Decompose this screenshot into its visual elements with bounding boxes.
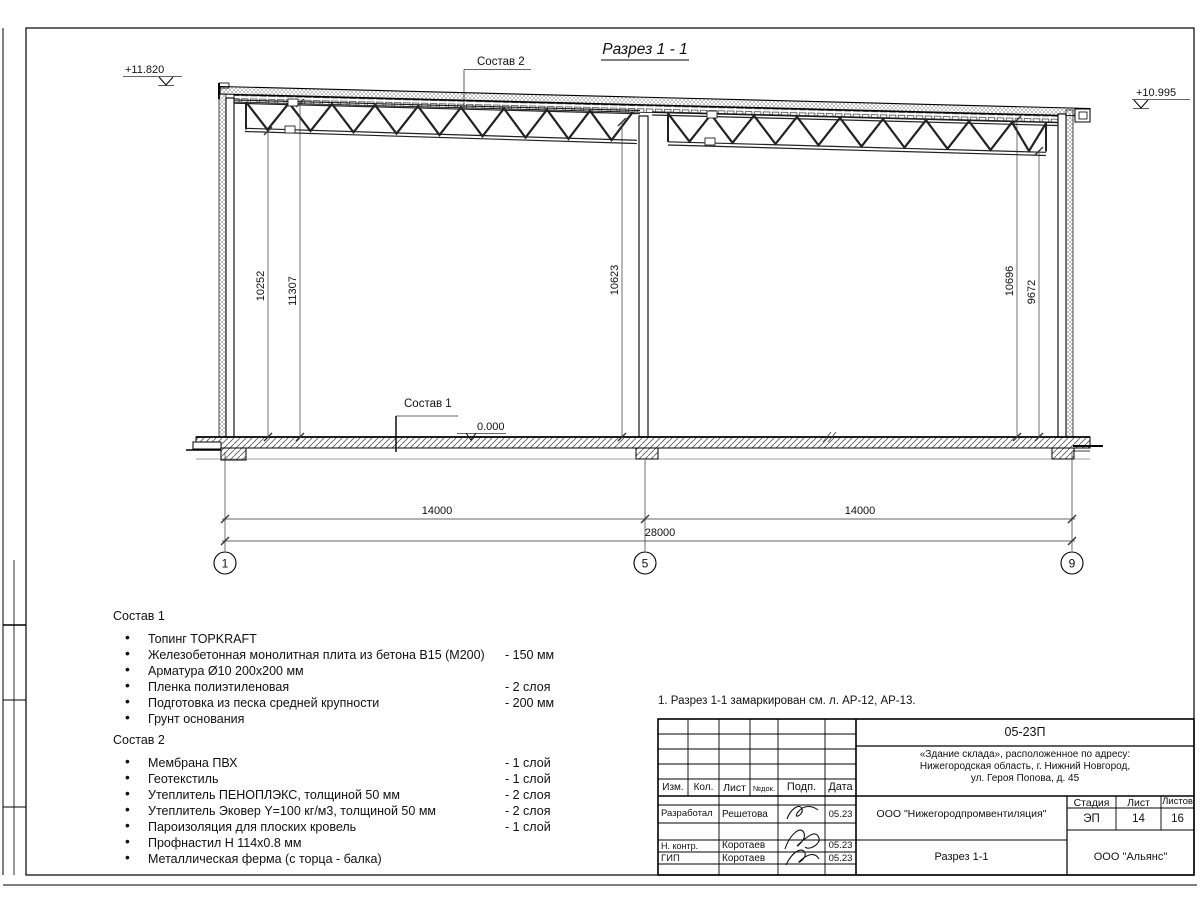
stamp-row-role: Н. контр. bbox=[661, 841, 698, 851]
stamp-col-ndok: №док. bbox=[750, 785, 778, 794]
floor-slab bbox=[186, 432, 1103, 460]
list-item: •Железобетонная монолитная плита из бето… bbox=[113, 647, 583, 663]
bullet-icon: • bbox=[125, 833, 130, 849]
list-item: •Пароизоляция для плоских кровель- 1 сло… bbox=[113, 819, 583, 835]
foundation-right bbox=[1052, 448, 1074, 459]
dim-label-total: 28000 bbox=[645, 527, 676, 539]
stamp-row-name: Коротаев bbox=[722, 840, 765, 852]
signatures bbox=[785, 806, 819, 865]
stamp-row-date: 05.23 bbox=[825, 810, 856, 821]
composition-1-legend: Состав 1 •Топинг TOPKRAFT •Железобетонна… bbox=[113, 608, 583, 727]
dim-label-10696: 10696 bbox=[1004, 266, 1016, 297]
list-item: •Геотекстиль- 1 слой bbox=[113, 771, 583, 787]
column-middle bbox=[639, 116, 648, 437]
stamp-col-kol: Кол. bbox=[688, 782, 719, 794]
note: 1. Разрез 1-1 замаркирован см. л. АР-12,… bbox=[658, 695, 916, 707]
drawing-sheet: Разрез 1 - 1 bbox=[0, 0, 1200, 900]
stamp-stage-value: ЭП bbox=[1067, 813, 1116, 826]
dim-label-11307: 11307 bbox=[287, 276, 299, 306]
stamp-doc-number: 05-23П bbox=[856, 725, 1194, 739]
composition-2-title: Состав 2 bbox=[113, 732, 583, 748]
elevation-mark-left: +11.820 bbox=[123, 64, 182, 86]
list-item: •Подготовка из песка средней крупности- … bbox=[113, 695, 583, 711]
stamp-row-name: Решетова bbox=[722, 809, 768, 821]
composition-1-title: Состав 1 bbox=[113, 608, 583, 624]
stamp-sheets-value: 16 bbox=[1161, 813, 1194, 826]
dim-label-bay-left: 14000 bbox=[422, 505, 453, 517]
stamp-drawing-name: Разрез 1-1 bbox=[856, 851, 1067, 864]
column-left bbox=[226, 98, 234, 437]
list-item: •Утеплитель Эковер Y=100 кг/м3, толщиной… bbox=[113, 803, 583, 819]
stamp-org2: ООО "Альянс" bbox=[1067, 851, 1194, 864]
bullet-icon: • bbox=[125, 785, 130, 801]
wall-panel-right bbox=[1066, 110, 1073, 437]
stamp-col-data: Дата bbox=[825, 781, 856, 794]
list-item: •Мембрана ПВХ- 1 слой bbox=[113, 755, 583, 771]
signature-razrabotal bbox=[787, 806, 818, 819]
wall-panel-left bbox=[219, 94, 226, 437]
stamp-row-date: 05.23 bbox=[825, 841, 856, 852]
stamp-org: ООО "Нижегородпромвентиляция" bbox=[856, 808, 1067, 820]
stamp-row-name: Коротаев bbox=[722, 853, 765, 865]
stamp-sheets-label: Листов bbox=[1161, 797, 1194, 808]
axis-bubbles bbox=[214, 552, 1083, 574]
bullet-icon: • bbox=[125, 645, 130, 661]
column-right bbox=[1058, 114, 1066, 437]
bullet-icon: • bbox=[125, 629, 130, 645]
svg-text:+10.995: +10.995 bbox=[1136, 87, 1176, 99]
stamp-object-line3: ул. Героя Попова, д. 45 bbox=[856, 773, 1194, 785]
list-item: •Топинг TOPKRAFT bbox=[113, 631, 583, 647]
list-item: •Утеплитель ПЕНОПЛЭКС, толщиной 50 мм- 2… bbox=[113, 787, 583, 803]
bullet-icon: • bbox=[125, 817, 130, 833]
dim-label-bay-right: 14000 bbox=[845, 505, 876, 517]
stamp-object-line2: Нижегородская область, г. Нижний Новгоро… bbox=[856, 761, 1194, 773]
signature-nkontr bbox=[785, 830, 819, 849]
bullet-icon: • bbox=[125, 693, 130, 709]
stamp-col-list: Лист bbox=[719, 782, 750, 794]
dim-label-9672: 9672 bbox=[1026, 280, 1038, 304]
stamp-sheet-label: Лист bbox=[1116, 797, 1161, 809]
list-item: •Грунт основания bbox=[113, 711, 583, 727]
list-item: •Профнастил Н 114х0.8 мм bbox=[113, 835, 583, 851]
stamp-col-podp: Подп. bbox=[778, 781, 825, 794]
list-item: •Металлическая ферма (с торца - балка) bbox=[113, 851, 583, 867]
stamp-col-izm: Изм. bbox=[658, 782, 688, 794]
list-item: •Арматура Ø10 200х200 мм bbox=[113, 663, 583, 679]
axis-bubble-1: 1 bbox=[222, 557, 229, 571]
list-item: •Пленка полиэтиленовая- 2 слоя bbox=[113, 679, 583, 695]
bullet-icon: • bbox=[125, 709, 130, 725]
axis-bubble-9: 9 bbox=[1069, 557, 1076, 571]
stamp-stage-label: Стадия bbox=[1067, 797, 1116, 809]
drawing-title: Разрез 1 - 1 bbox=[602, 41, 687, 58]
stamp-object-line1: «Здание склада», расположенное по адресу… bbox=[856, 749, 1194, 761]
svg-text:Состав 1: Состав 1 bbox=[404, 398, 452, 410]
elevation-mark-right: +10.995 bbox=[1132, 87, 1190, 109]
bullet-icon: • bbox=[125, 769, 130, 785]
dim-label-10623: 10623 bbox=[609, 265, 621, 296]
axis-bubble-5: 5 bbox=[642, 557, 649, 571]
bullet-icon: • bbox=[125, 801, 130, 817]
stamp-row-role: ГИП bbox=[661, 854, 680, 865]
vertical-dimensions bbox=[264, 99, 1043, 441]
svg-text:+11.820: +11.820 bbox=[125, 64, 164, 76]
composition-2-legend: Состав 2 •Мембрана ПВХ- 1 слой •Геотекст… bbox=[113, 732, 583, 867]
bullet-icon: • bbox=[125, 677, 130, 693]
stamp-row-role: Разработал bbox=[661, 809, 713, 820]
bullet-icon: • bbox=[125, 849, 130, 865]
bullet-icon: • bbox=[125, 753, 130, 769]
foundation-middle bbox=[636, 448, 658, 459]
svg-text:0.000: 0.000 bbox=[477, 421, 505, 433]
dim-label-10252: 10252 bbox=[255, 271, 267, 302]
bullet-icon: • bbox=[125, 661, 130, 677]
stamp-sheet-value: 14 bbox=[1116, 813, 1161, 826]
stamp-row-date: 05.23 bbox=[825, 854, 856, 865]
svg-text:Состав 2: Состав 2 bbox=[477, 56, 525, 68]
